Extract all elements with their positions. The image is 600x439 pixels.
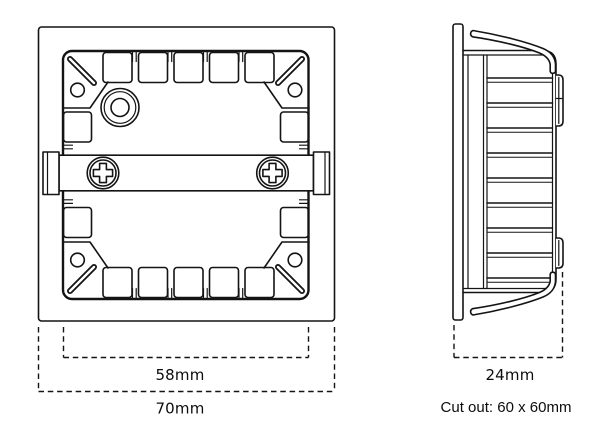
- fixing-screw-right: [257, 157, 289, 189]
- wall-box-dimension-diagram: 58mm 70mm 24mm: [0, 0, 600, 439]
- front-top-knockout-tabs: [103, 53, 274, 83]
- side-ribs: [487, 78, 553, 282]
- side-depth-dimension-lines: [454, 272, 563, 358]
- fixing-screw-left: [87, 157, 119, 189]
- side-depth-dimension-label: 24mm: [485, 366, 534, 384]
- side-snap-lugs: [556, 75, 563, 268]
- front-bottom-knockout-tabs: [103, 268, 274, 298]
- mounting-bar: [43, 152, 330, 195]
- mounting-bar-right-cap: [314, 152, 330, 195]
- cutout-note-label: Cut out: 60 x 60mm: [441, 399, 572, 416]
- front-outer-width-dimension-label: 70mm: [155, 400, 204, 418]
- side-view-drawing: 24mm Cut out: 60 x 60mm: [441, 24, 572, 416]
- front-inner-width-dimension-label: 58mm: [155, 366, 204, 384]
- front-inner-dimension-lines: [64, 327, 309, 358]
- side-body: [463, 51, 563, 293]
- mounting-bar-left-cap: [43, 152, 59, 195]
- cable-knockout-hole: [101, 89, 139, 127]
- technical-drawing-canvas: 58mm 70mm 24mm: [0, 0, 600, 439]
- side-flange: [453, 24, 463, 320]
- front-view-drawing: 58mm 70mm: [39, 27, 335, 418]
